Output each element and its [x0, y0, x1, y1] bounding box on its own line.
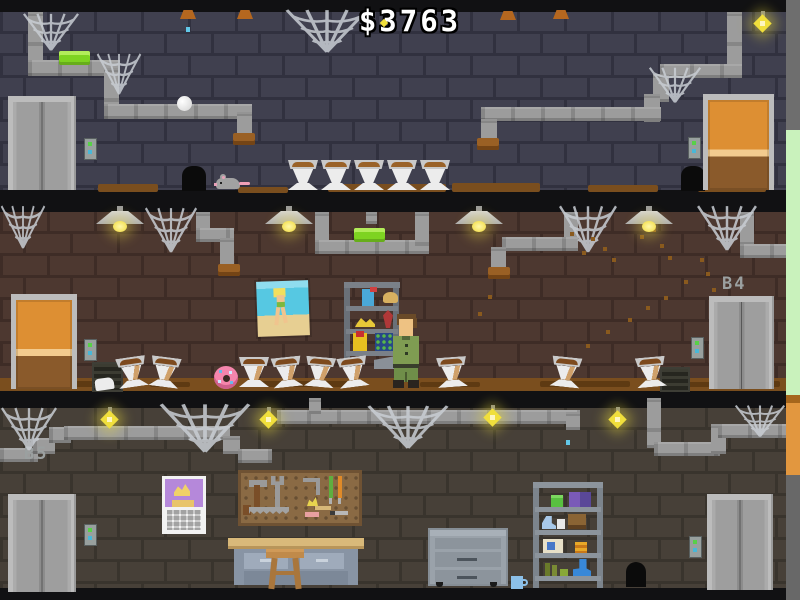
storage-shelf [533, 482, 604, 588]
elevator-call-button[interactable] [691, 337, 704, 359]
straw-hat-item [383, 292, 398, 303]
debris-speck [478, 312, 482, 316]
pipe [740, 244, 786, 258]
toilet-floor2[interactable] [239, 357, 269, 387]
stool [266, 549, 304, 589]
brown-box-item [568, 514, 586, 529]
green-box-item [551, 495, 563, 507]
elevator-call-button[interactable] [84, 138, 97, 160]
ceiling-lamp-icon [96, 206, 144, 234]
debris-speck [570, 232, 574, 236]
white-item [557, 519, 565, 529]
toilet-floor1[interactable] [354, 160, 384, 190]
debris-speck [488, 295, 492, 299]
outside-ground-strip [786, 0, 800, 130]
toilet-floor1[interactable] [288, 160, 318, 190]
pipe [238, 449, 272, 463]
striped-box-item [575, 542, 587, 553]
toilet-floor2[interactable] [550, 356, 583, 389]
cheese-item [307, 497, 318, 506]
pipe [481, 107, 661, 121]
debris-speck [640, 235, 644, 239]
eraser-item [305, 512, 319, 517]
elevator-doors[interactable] [8, 96, 76, 190]
soap-bar[interactable] [59, 51, 90, 65]
pipe [660, 64, 742, 78]
dirt-patch [98, 184, 158, 192]
light-bulb-icon [483, 405, 503, 429]
mouse-hole [626, 562, 646, 587]
toilet-floor2[interactable] [336, 355, 369, 388]
donut[interactable] [214, 366, 238, 389]
pipe [64, 426, 230, 440]
toilet-floor1[interactable] [387, 160, 417, 190]
pipe [647, 398, 661, 448]
orange-screwdriver-icon [338, 476, 342, 498]
toilet-floor2[interactable] [304, 356, 337, 389]
mug[interactable] [511, 575, 528, 589]
pipe [502, 237, 578, 251]
floor-label-b4: B4 [722, 274, 746, 294]
outside-ground-strip [786, 475, 800, 600]
elevator-doors[interactable] [709, 296, 774, 389]
filing-cabinet[interactable] [428, 528, 508, 586]
outside-ground-strip [786, 403, 800, 475]
light-bulb-icon [608, 407, 628, 431]
mouse-hole [681, 166, 705, 191]
toilet-floor2[interactable] [148, 355, 181, 388]
pipe-bracket [218, 264, 240, 276]
bottle-item [545, 563, 550, 576]
purple-package-item [580, 492, 591, 507]
elevator-call-button[interactable] [84, 524, 97, 546]
outside-ground-strip [786, 395, 800, 403]
pipe-bracket [233, 133, 255, 145]
saw-icon [249, 507, 289, 514]
debris-speck [612, 258, 616, 262]
elevator-doors[interactable] [8, 494, 76, 592]
pipe [366, 212, 377, 224]
debris-speck [646, 306, 650, 310]
ceiling-lamp-icon [455, 206, 503, 234]
outside-ground-strip [786, 130, 800, 395]
bottle-item [552, 565, 557, 576]
structure-band [0, 390, 786, 408]
janitor-character[interactable] [391, 314, 421, 388]
bottle-cap-item [356, 331, 364, 337]
pegboard [238, 470, 362, 526]
debris-speck [684, 280, 688, 284]
floor-label-b5: B5 [24, 444, 48, 464]
mouse-hole [182, 166, 206, 191]
dirt-patch [452, 183, 540, 192]
blue-boot-item [573, 559, 591, 576]
debris-speck [628, 318, 632, 322]
debris-speck [660, 244, 664, 248]
calendar [162, 476, 206, 534]
debris-speck [586, 344, 590, 348]
toilet-paper-ball[interactable] [177, 96, 192, 111]
pipe-bracket [488, 267, 510, 279]
pipe [309, 398, 321, 414]
toilet-floor1[interactable] [321, 160, 351, 190]
debris-speck [591, 237, 595, 241]
toilet-floor2[interactable] [271, 356, 304, 389]
pipe-bracket [477, 138, 499, 150]
debris-speck [712, 288, 716, 292]
toilet-floor1[interactable] [420, 160, 450, 190]
debris-speck [582, 251, 586, 255]
elevator-call-button[interactable] [688, 137, 701, 159]
wooden-door[interactable] [703, 94, 774, 190]
pipe [718, 424, 786, 438]
light-boot-item [542, 516, 556, 529]
debris-speck [606, 330, 610, 334]
ceiling-lamp-icon [625, 206, 673, 234]
structure-band [0, 588, 786, 600]
toilet-floor2[interactable] [436, 356, 468, 388]
pipe [315, 240, 429, 254]
debris-speck [700, 258, 704, 262]
green-bits-item [560, 569, 568, 576]
money-counter: $3763 [359, 4, 461, 38]
toilet-floor2[interactable] [635, 356, 668, 389]
soap-bar[interactable] [354, 228, 385, 242]
debris-speck [664, 296, 668, 300]
elevator-call-button[interactable] [84, 339, 97, 361]
rat[interactable] [216, 174, 250, 191]
elevator-doors[interactable] [707, 494, 773, 590]
game-stage: $3763 B4 B5 [0, 0, 800, 600]
ceiling-lamp-icon [265, 206, 313, 234]
debris-speck [603, 247, 607, 251]
green-screwdriver-icon [329, 476, 333, 498]
pinup-poster [256, 280, 310, 337]
light-bulb-icon [259, 407, 279, 431]
dirt-patch [588, 185, 658, 192]
light-bulb-icon [100, 407, 120, 431]
wooden-door[interactable] [11, 294, 77, 389]
pipe [566, 412, 580, 430]
water-drip-icon [566, 440, 570, 445]
debris-speck [706, 272, 710, 276]
pipe [277, 410, 580, 424]
light-bulb-icon [753, 11, 773, 35]
elevator-call-button[interactable] [689, 536, 702, 558]
toilet-floor2[interactable] [115, 355, 149, 389]
gold-nuggets-item [355, 318, 375, 327]
spray-nozzle-item [370, 287, 377, 292]
purple-package-item [569, 492, 580, 507]
debris-speck [668, 256, 672, 260]
brush-item [315, 506, 331, 510]
water-drip-icon [186, 27, 190, 32]
pipe [415, 212, 429, 254]
